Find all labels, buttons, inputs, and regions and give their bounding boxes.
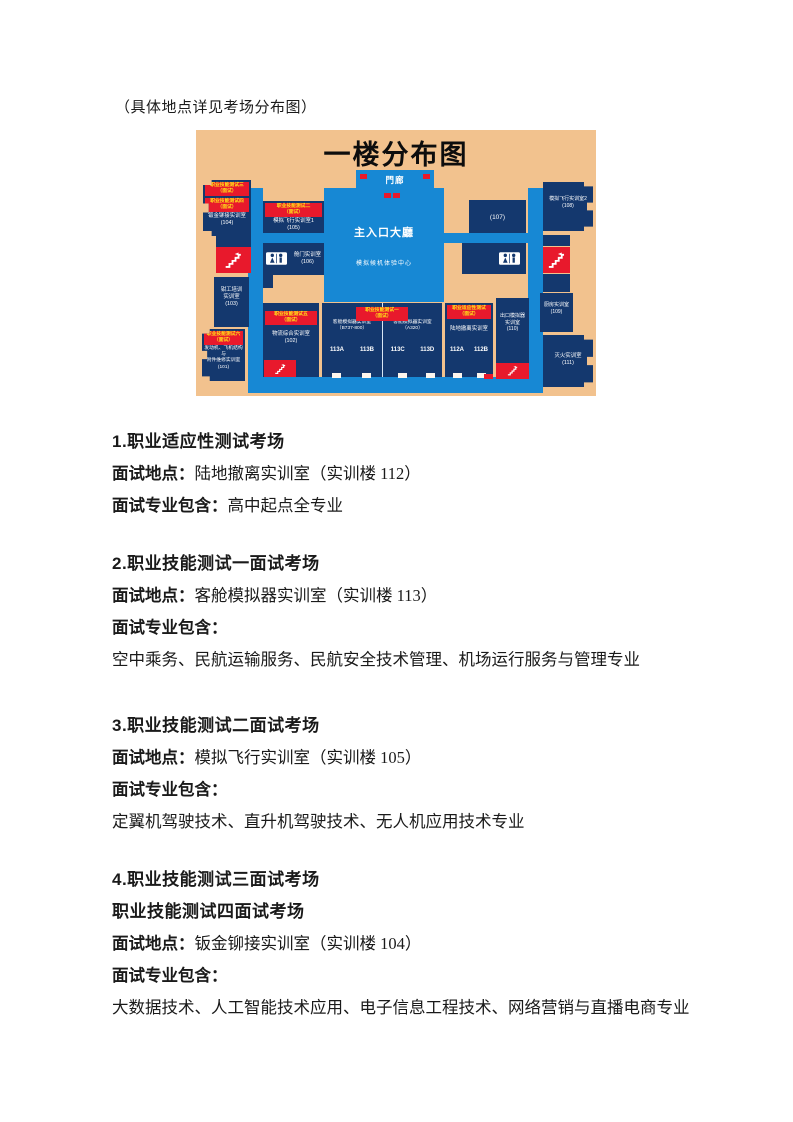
location-value: 模拟飞行实训室（实训楼 105） bbox=[195, 748, 422, 767]
stairs-bottom-left bbox=[264, 360, 296, 377]
corridor-bottom bbox=[248, 377, 543, 393]
room-109-name: 厨房实训室 (109) bbox=[540, 302, 573, 315]
stairs-icon bbox=[547, 251, 566, 269]
experience-center-label: 模拟候机体验中心 bbox=[324, 258, 444, 267]
section-4-majors-label: 面试专业包含： bbox=[112, 967, 702, 986]
cell-113C: 113C bbox=[391, 347, 405, 355]
majors-label: 面试专业包含： bbox=[112, 497, 228, 515]
map-title: 一楼分布图 bbox=[196, 133, 596, 172]
room-101-name: 发动机、飞机结构与 附件维修实训室 (101) bbox=[202, 346, 245, 371]
location-label: 面试地点： bbox=[112, 587, 195, 605]
majors-label: 面试专业包含： bbox=[112, 619, 228, 637]
door-notch bbox=[453, 373, 462, 378]
restroom-block-left bbox=[263, 243, 291, 275]
room-112-name: 陆地撤离实训室 bbox=[445, 326, 493, 333]
room-108: 模拟飞行实训室2 (108) bbox=[543, 182, 593, 231]
room-111: 灭火实训室 (111) bbox=[543, 335, 593, 387]
door-notch bbox=[362, 373, 371, 378]
majors-value: 高中起点全专业 bbox=[228, 496, 344, 515]
stairs-icon bbox=[501, 365, 524, 376]
location-label: 面试地点： bbox=[112, 465, 195, 483]
section-2-majors-label: 面试专业包含： bbox=[112, 619, 702, 638]
stairs-bottom-right bbox=[496, 363, 529, 379]
room-101-banner: 职业技能测试六 （面试） bbox=[204, 331, 244, 345]
room-103: 钳工培训 实训室 (103) bbox=[214, 277, 249, 327]
room-111-name: 灭火实训室 (111) bbox=[543, 353, 593, 367]
room-110-name: 出口模拟器 实训室 (110) bbox=[496, 313, 529, 333]
section-1: 1.职业适应性测试考场 面试地点：陆地撤离实训室（实训楼 112） 面试专业包含… bbox=[112, 433, 702, 529]
main-hall: 主入口大廳 模拟候机体验中心 bbox=[324, 188, 444, 302]
majors-label: 面试专业包含： bbox=[112, 967, 228, 985]
section-1-heading: 1.职业适应性测试考场 bbox=[112, 433, 702, 452]
door-notch bbox=[426, 373, 435, 378]
location-value: 客舱模拟器实训室（实训楼 113） bbox=[195, 586, 438, 605]
section-4-heading-2: 职业技能测试四面试考场 bbox=[112, 903, 702, 922]
door-mark bbox=[484, 374, 493, 379]
corridor-conn-right bbox=[443, 233, 528, 243]
section-1-location: 面试地点：陆地撤离实训室（实训楼 112） bbox=[112, 465, 702, 484]
section-3-majors: 定翼机驾驶技术、直升机驾驶技术、无人机应用技术专业 bbox=[112, 813, 702, 832]
cell-113D: 113D bbox=[420, 347, 434, 355]
restroom-block-right bbox=[462, 243, 526, 274]
room-106: 舱门实训室 (106) bbox=[291, 243, 324, 275]
door-mark bbox=[384, 193, 391, 198]
room-103-name: 钳工培训 实训室 (103) bbox=[214, 287, 249, 308]
room-105: 职业技能测试二 （面试） 模拟飞行实训室1 (105) bbox=[263, 201, 324, 233]
door-mark bbox=[360, 174, 367, 179]
room-112: 职业适应性测试 （面试） 陆地撤离实训室 112A 112B bbox=[445, 303, 493, 377]
section-4: 4.职业技能测试三面试考场 职业技能测试四面试考场 面试地点：钣金铆接实训室（实… bbox=[112, 871, 702, 1031]
cell-113A: 113A bbox=[330, 347, 344, 355]
section-1-majors: 面试专业包含：高中起点全专业 bbox=[112, 497, 702, 516]
room-104-banner-2: 职业技能测试四 （面试） bbox=[205, 198, 249, 212]
room-105-name: 模拟飞行实训室1 (105) bbox=[263, 218, 324, 232]
section-2-heading: 2.职业技能测试一面试考场 bbox=[112, 555, 702, 574]
room-104: 职业技能测试三 （面试） 职业技能测试四 （面试） 钣金铆接实训室 (104) bbox=[203, 180, 251, 236]
porch: 門廊 bbox=[356, 170, 434, 200]
restroom-icon bbox=[499, 252, 520, 265]
location-value: 陆地撤离实训室（实训楼 112） bbox=[195, 464, 421, 483]
stairs-icon bbox=[221, 251, 246, 269]
stairs-icon bbox=[269, 363, 291, 375]
door-notch bbox=[332, 373, 341, 378]
room-105-banner: 职业技能测试二 （面试） bbox=[265, 203, 321, 217]
room-101: 职业技能测试六 （面试） 发动机、飞机结构与 附件维修实训室 (101) bbox=[202, 329, 245, 381]
section-4-majors: 大数据技术、人工智能技术应用、电子信息工程技术、网络营销与直播电商专业 bbox=[112, 999, 702, 1018]
room-107-name: (107) bbox=[469, 214, 526, 222]
room-113-b737-name: 客舱模拟器实训室 （B737-800） bbox=[322, 320, 382, 332]
room-104-banner-1: 职业技能测试三 （面试） bbox=[205, 182, 249, 196]
section-4-location: 面试地点：钣金铆接实训室（实训楼 104） bbox=[112, 935, 702, 954]
location-label: 面试地点： bbox=[112, 749, 195, 767]
stairs-left bbox=[216, 247, 251, 273]
section-4-heading: 4.职业技能测试三面试考场 bbox=[112, 871, 702, 890]
document-page: （具体地点详见考场分布图） 一楼分布图 主入口大廳 模拟候机体验中心 門廊 职业… bbox=[0, 0, 793, 1122]
room-108-name: 模拟飞行实训室2 (108) bbox=[543, 196, 593, 209]
cell-113B: 113B bbox=[360, 347, 374, 355]
room-112-banner: 职业适应性测试 （面试） bbox=[447, 305, 491, 319]
room-102-name: 物流综合实训室 (102) bbox=[263, 331, 319, 345]
location-label: 面试地点： bbox=[112, 935, 195, 953]
room-106-name: 舱门实训室 (106) bbox=[291, 252, 324, 266]
section-2: 2.职业技能测试一面试考场 面试地点：客舱模拟器实训室（实训楼 113） 面试专… bbox=[112, 555, 702, 683]
room-113: 客舱模拟器实训室 （B737-800） 113A 113B 客舱模拟器实训室 （… bbox=[322, 303, 442, 377]
intro-note: （具体地点详见考场分布图） bbox=[115, 96, 317, 117]
door-notch bbox=[398, 373, 407, 378]
filler-block bbox=[216, 236, 251, 247]
room-109: 厨房实训室 (109) bbox=[540, 293, 573, 332]
filler-block bbox=[263, 275, 273, 288]
corridor-conn-left bbox=[263, 233, 324, 243]
room-113-banner: 职业技能测试一 （面试） bbox=[356, 307, 408, 321]
main-hall-label: 主入口大廳 bbox=[324, 224, 444, 240]
floor-plan-map: 一楼分布图 主入口大廳 模拟候机体验中心 門廊 职业技能测试三 （面试） 职业技… bbox=[196, 130, 596, 396]
section-2-majors: 空中乘务、民航运输服务、民航安全技术管理、机场运行服务与管理专业 bbox=[112, 651, 702, 670]
section-3-heading: 3.职业技能测试二面试考场 bbox=[112, 717, 702, 736]
section-3-majors-label: 面试专业包含： bbox=[112, 781, 702, 800]
section-3: 3.职业技能测试二面试考场 面试地点：模拟飞行实训室（实训楼 105） 面试专业… bbox=[112, 717, 702, 845]
corridor-right bbox=[528, 188, 543, 393]
door-mark bbox=[393, 193, 400, 198]
door-mark bbox=[423, 174, 430, 179]
location-value: 钣金铆接实训室（实训楼 104） bbox=[195, 934, 422, 953]
cell-112B: 112B bbox=[474, 347, 488, 355]
restroom-icon bbox=[266, 252, 287, 265]
cell-112A: 112A bbox=[450, 347, 464, 355]
room-104-name: 钣金铆接实训室 (104) bbox=[203, 213, 251, 227]
room-110: 出口模拟器 实训室 (110) bbox=[496, 298, 529, 363]
filler-block bbox=[543, 235, 570, 246]
filler-block bbox=[543, 274, 570, 292]
room-107: (107) bbox=[469, 200, 526, 233]
stairs-right-top bbox=[543, 247, 570, 273]
section-2-location: 面试地点：客舱模拟器实训室（实训楼 113） bbox=[112, 587, 702, 606]
majors-label: 面试专业包含： bbox=[112, 781, 228, 799]
room-113-a320-name: 客舱模拟器实训室 （A320） bbox=[383, 320, 442, 332]
section-3-location: 面试地点：模拟飞行实训室（实训楼 105） bbox=[112, 749, 702, 768]
room-102-banner: 职业技能测试五 （面试） bbox=[265, 311, 317, 325]
